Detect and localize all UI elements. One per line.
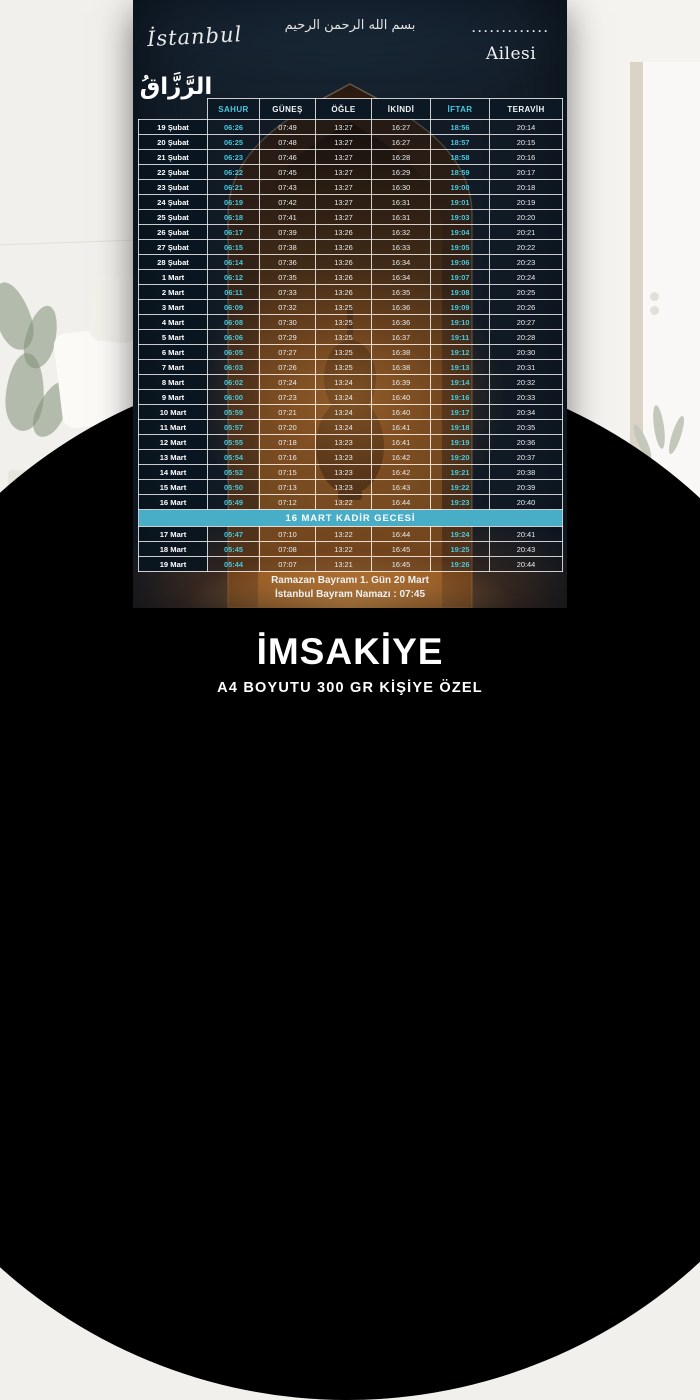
time-cell-öğle: 13:23 — [316, 450, 372, 465]
time-cell-sahur: 06:08 — [208, 315, 260, 330]
time-cell-i̇ftar: 19:26 — [431, 557, 490, 572]
time-cell-i̇ftar: 19:08 — [431, 285, 490, 300]
time-cell-i̇ki̇ndi̇: 16:35 — [372, 285, 431, 300]
date-cell: 20 Şubat — [139, 135, 208, 150]
time-cell-güneş: 07:33 — [260, 285, 316, 300]
time-cell-i̇ki̇ndi̇: 16:36 — [372, 315, 431, 330]
time-cell-i̇ki̇ndi̇: 16:37 — [372, 330, 431, 345]
product-subtitle: A4 BOYUTU 300 GR KİŞİYE ÖZEL — [0, 680, 700, 696]
time-cell-güneş: 07:16 — [260, 450, 316, 465]
time-cell-güneş: 07:13 — [260, 480, 316, 495]
family-name-dots: ············· — [461, 24, 561, 38]
time-cell-teravi̇h: 20:23 — [490, 255, 563, 270]
time-cell-güneş: 07:23 — [260, 390, 316, 405]
time-cell-sahur: 06:21 — [208, 180, 260, 195]
time-cell-öğle: 13:24 — [316, 375, 372, 390]
table-row: 9 Mart06:0007:2313:2416:4019:1620:33 — [139, 390, 563, 405]
time-cell-i̇ftar: 19:11 — [431, 330, 490, 345]
date-cell: 12 Mart — [139, 435, 208, 450]
time-cell-sahur: 06:17 — [208, 225, 260, 240]
time-cell-i̇ki̇ndi̇: 16:39 — [372, 375, 431, 390]
table-row: 6 Mart06:0507:2713:2516:3819:1220:30 — [139, 345, 563, 360]
time-cell-i̇ki̇ndi̇: 16:28 — [372, 150, 431, 165]
time-cell-sahur: 06:12 — [208, 270, 260, 285]
date-cell: 17 Mart — [139, 527, 208, 542]
time-cell-öğle: 13:27 — [316, 195, 372, 210]
poster-footer: Ramazan Bayramı 1. Gün 20 Mart İstanbul … — [138, 574, 562, 602]
time-cell-sahur: 06:11 — [208, 285, 260, 300]
family-label: Ailesi — [465, 44, 557, 64]
time-cell-öğle: 13:27 — [316, 150, 372, 165]
time-cell-teravi̇h: 20:36 — [490, 435, 563, 450]
time-cell-sahur: 05:54 — [208, 450, 260, 465]
time-cell-teravi̇h: 20:14 — [490, 120, 563, 135]
date-cell: 23 Şubat — [139, 180, 208, 195]
time-cell-i̇ki̇ndi̇: 16:36 — [372, 300, 431, 315]
time-cell-i̇ftar: 19:19 — [431, 435, 490, 450]
time-cell-güneş: 07:08 — [260, 542, 316, 557]
time-cell-sahur: 06:25 — [208, 135, 260, 150]
time-cell-sahur: 06:26 — [208, 120, 260, 135]
time-cell-öğle: 13:25 — [316, 360, 372, 375]
time-cell-i̇ftar: 19:14 — [431, 375, 490, 390]
date-cell: 14 Mart — [139, 465, 208, 480]
time-cell-i̇ki̇ndi̇: 16:31 — [372, 195, 431, 210]
date-cell: 18 Mart — [139, 542, 208, 557]
time-cell-i̇ftar: 19:24 — [431, 527, 490, 542]
time-cell-teravi̇h: 20:19 — [490, 195, 563, 210]
time-cell-güneş: 07:39 — [260, 225, 316, 240]
time-cell-teravi̇h: 20:43 — [490, 542, 563, 557]
time-cell-teravi̇h: 20:30 — [490, 345, 563, 360]
table-row: 28 Şubat06:1407:3613:2616:3419:0620:23 — [139, 255, 563, 270]
time-cell-güneş: 07:29 — [260, 330, 316, 345]
time-cell-teravi̇h: 20:35 — [490, 420, 563, 435]
date-cell: 3 Mart — [139, 300, 208, 315]
table-row: 25 Şubat06:1807:4113:2716:3119:0320:20 — [139, 210, 563, 225]
time-cell-öğle: 13:26 — [316, 225, 372, 240]
time-cell-sahur: 05:55 — [208, 435, 260, 450]
time-cell-güneş: 07:36 — [260, 255, 316, 270]
time-cell-sahur: 06:09 — [208, 300, 260, 315]
product-caption: İMSAKİYE A4 BOYUTU 300 GR KİŞİYE ÖZEL — [0, 630, 700, 696]
time-cell-i̇ki̇ndi̇: 16:27 — [372, 135, 431, 150]
time-cell-sahur: 06:14 — [208, 255, 260, 270]
column-header-i̇ki̇ndi̇: İKİNDİ — [372, 99, 431, 120]
time-cell-öğle: 13:24 — [316, 405, 372, 420]
date-cell: 21 Şubat — [139, 150, 208, 165]
time-cell-güneş: 07:42 — [260, 195, 316, 210]
date-cell: 8 Mart — [139, 375, 208, 390]
time-cell-güneş: 07:26 — [260, 360, 316, 375]
time-cell-teravi̇h: 20:27 — [490, 315, 563, 330]
date-cell: 27 Şubat — [139, 240, 208, 255]
time-cell-öğle: 13:26 — [316, 285, 372, 300]
time-cell-i̇ftar: 19:22 — [431, 480, 490, 495]
time-cell-güneş: 07:35 — [260, 270, 316, 285]
time-cell-i̇ftar: 19:09 — [431, 300, 490, 315]
time-cell-teravi̇h: 20:38 — [490, 465, 563, 480]
imsakiye-poster: İstanbul بسم الله الرحمن الرحيم ········… — [133, 0, 567, 608]
time-cell-teravi̇h: 20:17 — [490, 165, 563, 180]
time-cell-i̇ftar: 19:03 — [431, 210, 490, 225]
date-cell: 6 Mart — [139, 345, 208, 360]
time-cell-teravi̇h: 20:16 — [490, 150, 563, 165]
time-cell-i̇ki̇ndi̇: 16:34 — [372, 255, 431, 270]
date-cell: 26 Şubat — [139, 225, 208, 240]
time-cell-güneş: 07:46 — [260, 150, 316, 165]
time-cell-öğle: 13:27 — [316, 120, 372, 135]
time-cell-güneş: 07:45 — [260, 165, 316, 180]
kadir-gecesi-banner: 16 MART KADİR GECESİ — [139, 510, 563, 527]
time-cell-güneş: 07:12 — [260, 495, 316, 510]
date-cell: 10 Mart — [139, 405, 208, 420]
time-cell-öğle: 13:25 — [316, 345, 372, 360]
table-row: 12 Mart05:5507:1813:2316:4119:1920:36 — [139, 435, 563, 450]
time-cell-i̇ki̇ndi̇: 16:44 — [372, 495, 431, 510]
time-cell-güneş: 07:24 — [260, 375, 316, 390]
time-cell-i̇ki̇ndi̇: 16:42 — [372, 450, 431, 465]
time-cell-i̇ki̇ndi̇: 16:45 — [372, 542, 431, 557]
header-corner-blank — [139, 99, 208, 120]
time-cell-i̇ftar: 19:25 — [431, 542, 490, 557]
time-cell-öğle: 13:23 — [316, 480, 372, 495]
time-cell-i̇ftar: 19:18 — [431, 420, 490, 435]
time-cell-i̇ftar: 19:12 — [431, 345, 490, 360]
time-cell-teravi̇h: 20:21 — [490, 225, 563, 240]
time-cell-teravi̇h: 20:28 — [490, 330, 563, 345]
wall-seam — [0, 240, 135, 246]
time-cell-teravi̇h: 20:18 — [490, 180, 563, 195]
time-cell-teravi̇h: 20:20 — [490, 210, 563, 225]
time-cell-teravi̇h: 20:22 — [490, 240, 563, 255]
table-row: 16 Mart05:4907:1213:2216:4419:2320:40 — [139, 495, 563, 510]
time-cell-i̇ftar: 19:01 — [431, 195, 490, 210]
time-cell-i̇ftar: 18:56 — [431, 120, 490, 135]
table-row: 14 Mart05:5207:1513:2316:4219:2120:38 — [139, 465, 563, 480]
date-cell: 28 Şubat — [139, 255, 208, 270]
time-cell-i̇ki̇ndi̇: 16:34 — [372, 270, 431, 285]
time-cell-i̇ki̇ndi̇: 16:33 — [372, 240, 431, 255]
time-cell-i̇ftar: 19:04 — [431, 225, 490, 240]
time-cell-i̇ki̇ndi̇: 16:40 — [372, 390, 431, 405]
table-row: 20 Şubat06:2507:4813:2716:2718:5720:15 — [139, 135, 563, 150]
time-cell-sahur: 05:52 — [208, 465, 260, 480]
time-cell-öğle: 13:24 — [316, 390, 372, 405]
table-row: 23 Şubat06:2107:4313:2716:3019:0020:18 — [139, 180, 563, 195]
table-row: 22 Şubat06:2207:4513:2716:2918:5920:17 — [139, 165, 563, 180]
time-cell-güneş: 07:18 — [260, 435, 316, 450]
time-cell-sahur: 05:59 — [208, 405, 260, 420]
date-cell: 19 Şubat — [139, 120, 208, 135]
time-cell-i̇ftar: 19:23 — [431, 495, 490, 510]
table-row: 24 Şubat06:1907:4213:2716:3119:0120:19 — [139, 195, 563, 210]
date-cell: 24 Şubat — [139, 195, 208, 210]
table-row: 4 Mart06:0807:3013:2516:3619:1020:27 — [139, 315, 563, 330]
time-cell-sahur: 06:00 — [208, 390, 260, 405]
table-row: 19 Mart05:4407:0713:2116:4519:2620:44 — [139, 557, 563, 572]
time-cell-teravi̇h: 20:32 — [490, 375, 563, 390]
date-cell: 1 Mart — [139, 270, 208, 285]
date-cell: 4 Mart — [139, 315, 208, 330]
time-cell-sahur: 06:06 — [208, 330, 260, 345]
column-header-sahur: SAHUR — [208, 99, 260, 120]
time-cell-i̇ki̇ndi̇: 16:27 — [372, 120, 431, 135]
time-cell-öğle: 13:27 — [316, 135, 372, 150]
date-cell: 22 Şubat — [139, 165, 208, 180]
time-cell-i̇ki̇ndi̇: 16:41 — [372, 435, 431, 450]
time-cell-i̇ftar: 19:21 — [431, 465, 490, 480]
column-header-güneş: GÜNEŞ — [260, 99, 316, 120]
time-cell-güneş: 07:10 — [260, 527, 316, 542]
kadir-gecesi-row: 16 MART KADİR GECESİ — [139, 510, 563, 527]
time-cell-güneş: 07:27 — [260, 345, 316, 360]
time-cell-öğle: 13:22 — [316, 495, 372, 510]
time-cell-öğle: 13:22 — [316, 542, 372, 557]
time-cell-i̇ftar: 19:16 — [431, 390, 490, 405]
time-cell-güneş: 07:38 — [260, 240, 316, 255]
table-row: 11 Mart05:5707:2013:2416:4119:1820:35 — [139, 420, 563, 435]
table-row: 15 Mart05:5007:1313:2316:4319:2220:39 — [139, 480, 563, 495]
column-header-teravi̇h: TERAVİH — [490, 99, 563, 120]
time-cell-i̇ftar: 19:07 — [431, 270, 490, 285]
time-cell-sahur: 06:03 — [208, 360, 260, 375]
date-cell: 7 Mart — [139, 360, 208, 375]
table-row: 2 Mart06:1107:3313:2616:3519:0820:25 — [139, 285, 563, 300]
date-cell: 25 Şubat — [139, 210, 208, 225]
time-cell-öğle: 13:23 — [316, 435, 372, 450]
time-cell-öğle: 13:27 — [316, 210, 372, 225]
time-cell-güneş: 07:20 — [260, 420, 316, 435]
time-cell-güneş: 07:15 — [260, 465, 316, 480]
table-row: 13 Mart05:5407:1613:2316:4219:2020:37 — [139, 450, 563, 465]
time-cell-i̇ki̇ndi̇: 16:38 — [372, 360, 431, 375]
prayer-table: SAHURGÜNEŞÖĞLEİKİNDİİFTARTERAVİH19 Şubat… — [138, 98, 563, 572]
table-row: 3 Mart06:0907:3213:2516:3619:0920:26 — [139, 300, 563, 315]
time-cell-i̇ki̇ndi̇: 16:31 — [372, 210, 431, 225]
time-cell-i̇ki̇ndi̇: 16:43 — [372, 480, 431, 495]
time-cell-sahur: 05:49 — [208, 495, 260, 510]
product-title: İMSAKİYE — [0, 630, 700, 674]
time-cell-öğle: 13:26 — [316, 255, 372, 270]
table-row: 26 Şubat06:1707:3913:2616:3219:0420:21 — [139, 225, 563, 240]
time-cell-güneş: 07:32 — [260, 300, 316, 315]
time-cell-teravi̇h: 20:39 — [490, 480, 563, 495]
table-row: 17 Mart05:4707:1013:2216:4419:2420:41 — [139, 527, 563, 542]
table-row: 27 Şubat06:1507:3813:2616:3319:0520:22 — [139, 240, 563, 255]
time-cell-teravi̇h: 20:33 — [490, 390, 563, 405]
date-cell: 5 Mart — [139, 330, 208, 345]
time-cell-i̇ftar: 19:05 — [431, 240, 490, 255]
time-cell-öğle: 13:27 — [316, 165, 372, 180]
date-cell: 19 Mart — [139, 557, 208, 572]
time-cell-güneş: 07:30 — [260, 315, 316, 330]
bayram-line: Ramazan Bayramı 1. Gün 20 Mart — [138, 574, 562, 588]
basmala-calligraphy: بسم الله الرحمن الرحيم — [280, 18, 420, 33]
date-cell: 16 Mart — [139, 495, 208, 510]
time-cell-öğle: 13:22 — [316, 527, 372, 542]
time-cell-teravi̇h: 20:25 — [490, 285, 563, 300]
time-cell-güneş: 07:49 — [260, 120, 316, 135]
time-cell-i̇ki̇ndi̇: 16:45 — [372, 557, 431, 572]
time-cell-teravi̇h: 20:44 — [490, 557, 563, 572]
time-cell-sahur: 05:47 — [208, 527, 260, 542]
time-cell-sahur: 05:50 — [208, 480, 260, 495]
time-cell-sahur: 06:02 — [208, 375, 260, 390]
date-cell: 2 Mart — [139, 285, 208, 300]
table-row: 5 Mart06:0607:2913:2516:3719:1120:28 — [139, 330, 563, 345]
time-cell-sahur: 06:22 — [208, 165, 260, 180]
time-cell-teravi̇h: 20:26 — [490, 300, 563, 315]
time-cell-güneş: 07:41 — [260, 210, 316, 225]
time-cell-öğle: 13:23 — [316, 465, 372, 480]
time-cell-i̇ftar: 19:17 — [431, 405, 490, 420]
time-cell-teravi̇h: 20:15 — [490, 135, 563, 150]
table-row: 18 Mart05:4507:0813:2216:4519:2520:43 — [139, 542, 563, 557]
time-cell-güneş: 07:48 — [260, 135, 316, 150]
door-handle — [650, 292, 659, 301]
column-header-i̇ftar: İFTAR — [431, 99, 490, 120]
date-cell: 15 Mart — [139, 480, 208, 495]
time-cell-güneş: 07:07 — [260, 557, 316, 572]
time-cell-sahur: 05:44 — [208, 557, 260, 572]
time-cell-i̇ftar: 18:57 — [431, 135, 490, 150]
table-header-row: SAHURGÜNEŞÖĞLEİKİNDİİFTARTERAVİH — [139, 99, 563, 120]
time-cell-i̇ftar: 18:58 — [431, 150, 490, 165]
time-cell-sahur: 06:23 — [208, 150, 260, 165]
table-row: 7 Mart06:0307:2613:2516:3819:1320:31 — [139, 360, 563, 375]
time-cell-i̇ftar: 19:00 — [431, 180, 490, 195]
time-cell-i̇ki̇ndi̇: 16:29 — [372, 165, 431, 180]
table-row: 8 Mart06:0207:2413:2416:3919:1420:32 — [139, 375, 563, 390]
time-cell-öğle: 13:26 — [316, 240, 372, 255]
time-cell-öğle: 13:25 — [316, 300, 372, 315]
time-cell-i̇ki̇ndi̇: 16:40 — [372, 405, 431, 420]
time-cell-sahur: 06:05 — [208, 345, 260, 360]
date-cell: 11 Mart — [139, 420, 208, 435]
time-cell-teravi̇h: 20:24 — [490, 270, 563, 285]
time-cell-i̇ki̇ndi̇: 16:42 — [372, 465, 431, 480]
time-cell-öğle: 13:25 — [316, 330, 372, 345]
column-header-öğle: ÖĞLE — [316, 99, 372, 120]
time-cell-i̇ki̇ndi̇: 16:38 — [372, 345, 431, 360]
time-cell-teravi̇h: 20:34 — [490, 405, 563, 420]
time-cell-i̇ki̇ndi̇: 16:41 — [372, 420, 431, 435]
time-cell-i̇ftar: 19:10 — [431, 315, 490, 330]
time-cell-öğle: 13:27 — [316, 180, 372, 195]
time-cell-öğle: 13:21 — [316, 557, 372, 572]
table-row: 19 Şubat06:2607:4913:2716:2718:5620:14 — [139, 120, 563, 135]
time-cell-i̇ftar: 19:13 — [431, 360, 490, 375]
time-cell-sahur: 05:45 — [208, 542, 260, 557]
time-cell-teravi̇h: 20:37 — [490, 450, 563, 465]
time-cell-teravi̇h: 20:31 — [490, 360, 563, 375]
table-row: 21 Şubat06:2307:4613:2716:2818:5820:16 — [139, 150, 563, 165]
date-cell: 13 Mart — [139, 450, 208, 465]
time-cell-sahur: 05:57 — [208, 420, 260, 435]
time-cell-güneş: 07:21 — [260, 405, 316, 420]
time-cell-güneş: 07:43 — [260, 180, 316, 195]
time-cell-i̇ki̇ndi̇: 16:30 — [372, 180, 431, 195]
time-cell-i̇ki̇ndi̇: 16:32 — [372, 225, 431, 240]
table-row: 10 Mart05:5907:2113:2416:4019:1720:34 — [139, 405, 563, 420]
time-cell-sahur: 06:19 — [208, 195, 260, 210]
time-cell-teravi̇h: 20:41 — [490, 527, 563, 542]
table-row: 1 Mart06:1207:3513:2616:3419:0720:24 — [139, 270, 563, 285]
time-cell-öğle: 13:26 — [316, 270, 372, 285]
time-cell-öğle: 13:25 — [316, 315, 372, 330]
date-cell: 9 Mart — [139, 390, 208, 405]
time-cell-i̇ki̇ndi̇: 16:44 — [372, 527, 431, 542]
time-cell-sahur: 06:15 — [208, 240, 260, 255]
time-cell-i̇ftar: 18:59 — [431, 165, 490, 180]
time-cell-öğle: 13:24 — [316, 420, 372, 435]
time-cell-i̇ftar: 19:06 — [431, 255, 490, 270]
time-cell-sahur: 06:18 — [208, 210, 260, 225]
time-cell-teravi̇h: 20:40 — [490, 495, 563, 510]
time-cell-i̇ftar: 19:20 — [431, 450, 490, 465]
bayram-namazi-line: İstanbul Bayram Namazı : 07:45 — [138, 588, 562, 602]
